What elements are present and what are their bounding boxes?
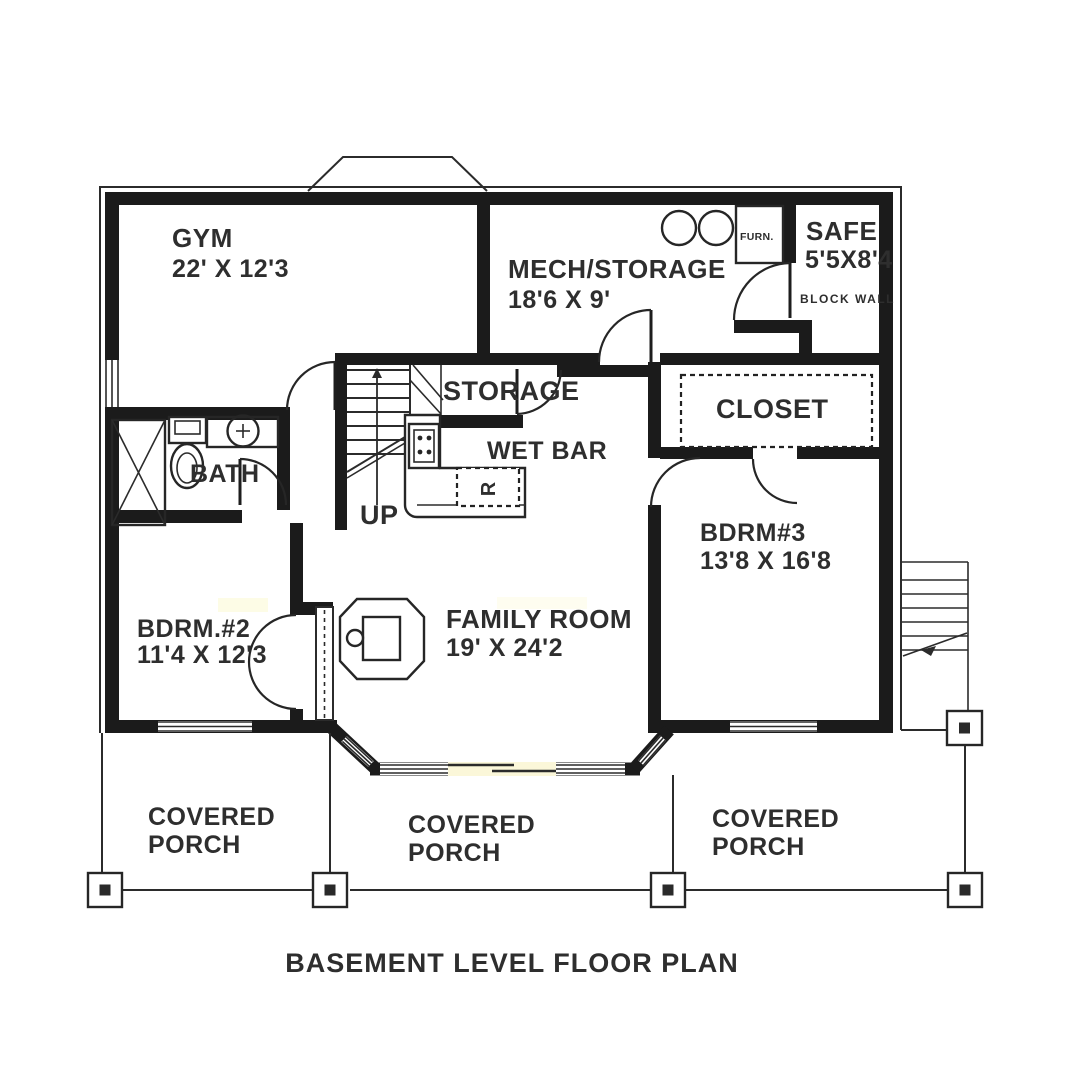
wood-stove [340, 599, 424, 679]
mech-storage-dims: 18'6 X 9' [508, 286, 611, 314]
mech-family-door [599, 310, 651, 362]
porch-right-line1: COVERED [712, 805, 839, 833]
closet-south-wall-left [660, 447, 753, 459]
closet-label: CLOSET [716, 394, 829, 424]
storage-label: STORAGE [443, 376, 580, 406]
gym-door [287, 362, 335, 410]
porch-post [313, 873, 347, 907]
refrigerator: R [457, 468, 519, 506]
closet-south-wall-right [797, 447, 881, 459]
safe-label: SAFE [806, 216, 877, 246]
porch-post [948, 873, 982, 907]
porch-right-line2: PORCH [712, 833, 805, 861]
floor-plan-page: R FURN. [0, 0, 1080, 1086]
wet-bar-label: WET BAR [487, 437, 607, 465]
stair-west-wall [335, 365, 347, 530]
gym-mech-wall [477, 205, 490, 353]
family-bdrm3-wall-lower [648, 505, 661, 733]
up-label: UP [360, 500, 399, 530]
gym-dims: 22' X 12'3 [172, 255, 289, 283]
basement-floor-plan-drawing: R FURN. [0, 0, 1080, 1086]
porch-post [651, 873, 685, 907]
bdrm3-dims: 13'8 X 16'8 [700, 547, 831, 575]
furnace-label: FURN. [740, 231, 774, 243]
safe-dims: 5'5X8'4 [805, 246, 893, 274]
bath-label: BATH [190, 460, 260, 488]
bdrm2-dims: 11'4 X 12'3 [137, 641, 267, 669]
front-bay-bump-outline [308, 157, 487, 191]
bay-window-bottom-left [380, 763, 448, 775]
refrigerator-label: R [478, 481, 500, 496]
water-tank-1 [662, 211, 696, 245]
porch-post [88, 873, 122, 907]
porch-post [947, 711, 982, 745]
porch-center-line2: PORCH [408, 839, 501, 867]
porch-left-line2: PORCH [148, 831, 241, 859]
bdrm3-label: BDRM#3 [700, 519, 806, 547]
bdrm2-east-wall-upper [290, 523, 303, 615]
shower-box [112, 420, 165, 525]
family-bdrm3-wall-upper [648, 362, 661, 458]
bdrm2-label: BDRM.#2 [137, 615, 250, 643]
pocket-wall-strip [316, 607, 333, 720]
furnace-safe-wall [783, 205, 796, 263]
bdrm3-north-wall [660, 353, 881, 365]
bay-window-bottom-right [556, 763, 625, 775]
bdrm3-door [651, 458, 700, 507]
up-arrow [372, 368, 382, 505]
mech-south-wall [335, 353, 600, 365]
bath-south-wall [105, 510, 242, 523]
water-tank-2 [699, 211, 733, 245]
closet-door [753, 459, 797, 503]
gym-label: GYM [172, 223, 233, 253]
mech-safe-door [734, 263, 790, 320]
plan-title: BASEMENT LEVEL FLOOR PLAN [285, 948, 739, 978]
porch-center-line1: COVERED [408, 811, 535, 839]
north-wall [105, 192, 893, 205]
west-wall-window [104, 360, 120, 410]
bdrm3-window [730, 721, 817, 732]
wet-bar-counter: R [405, 415, 525, 517]
family-room-bay [331, 727, 669, 776]
block-wall-note: BLOCK WALL [800, 292, 895, 306]
safe-step-wall [799, 320, 812, 365]
mech-storage-label: MECH/STORAGE [508, 254, 726, 284]
family-room-label: FAMILY ROOM [446, 604, 632, 634]
bdrm2-window [158, 721, 252, 732]
south-walls-and-bay [105, 720, 893, 776]
bay-window-left [342, 737, 372, 767]
bdrm2-east-wall-lower [290, 709, 303, 720]
family-room-dims: 19' X 24'2 [446, 634, 563, 662]
exterior-stairs [901, 562, 968, 711]
bath-sink [207, 416, 278, 448]
furnace-box: FURN. [736, 206, 783, 263]
bay-patio-door [448, 762, 556, 776]
porch-left-line1: COVERED [148, 803, 275, 831]
